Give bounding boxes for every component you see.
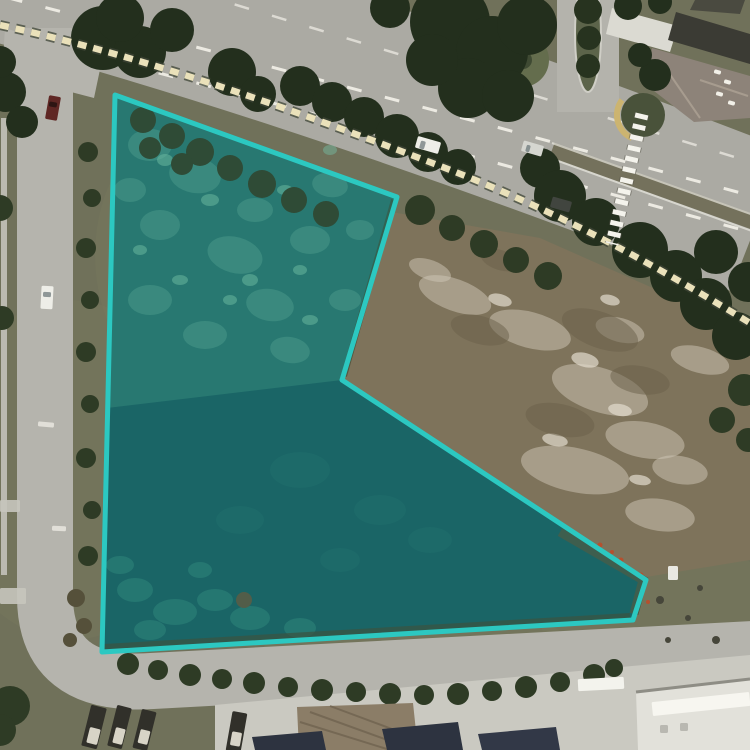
algae-speckle [323,145,337,155]
tree-canopy [83,189,101,207]
tree-canopy [515,676,537,698]
tree-canopy [694,230,738,274]
tree-canopy [76,448,96,468]
road-paint-mark [52,526,66,532]
tree-canopy [550,672,570,692]
tree-canopy [212,669,232,689]
roof-unit [680,723,688,731]
roof-unit [660,725,668,733]
tree-canopy [439,215,465,241]
bush [63,633,77,647]
tree-canopy [278,677,298,697]
tree-canopy [414,685,434,705]
tree-canopy [311,679,333,701]
tree-canopy [470,230,498,258]
ground-debris [697,585,703,591]
tree-canopy [405,195,435,225]
tree-canopy [240,76,276,112]
bush [76,618,92,634]
ground-debris [685,615,691,621]
aerial-imagery [0,0,750,750]
tree-canopy [628,43,652,67]
tree-canopy [150,8,194,52]
ground-debris [656,596,664,604]
tree-canopy [534,262,562,290]
driveway-apron [0,588,26,604]
ground-debris [665,637,671,643]
tree-canopy [76,342,96,362]
bank-flower [646,600,650,604]
tree-canopy [482,681,502,701]
tree-canopy [81,291,99,309]
tree-canopy [605,659,623,677]
tree-canopy [179,664,201,686]
tree-canopy [78,546,98,566]
car-window [43,292,51,297]
tree-canopy [406,34,458,86]
tree-canopy [447,683,469,705]
tree-canopy [482,70,534,122]
truck-trailer-white [578,677,625,691]
bank-flower [610,550,614,554]
tree-canopy [76,238,96,258]
tree-canopy [346,682,366,702]
map-viewport[interactable] [0,0,750,750]
tree-canopy [148,660,168,680]
street-median-tree [576,54,600,78]
car-white [40,286,53,310]
tree-canopy [709,407,735,433]
tree-canopy [379,683,401,705]
white-equipment [668,566,678,580]
tree-canopy [83,501,101,519]
tree-canopy [81,395,99,413]
driveway-apron [0,500,20,512]
tree-canopy [78,142,98,162]
tree-canopy [503,247,529,273]
ground-debris [712,636,720,644]
tree-canopy [117,653,139,675]
tree-canopy [243,672,265,694]
tree-canopy [6,106,38,138]
bush [67,589,85,607]
street-median-tree [577,26,601,50]
